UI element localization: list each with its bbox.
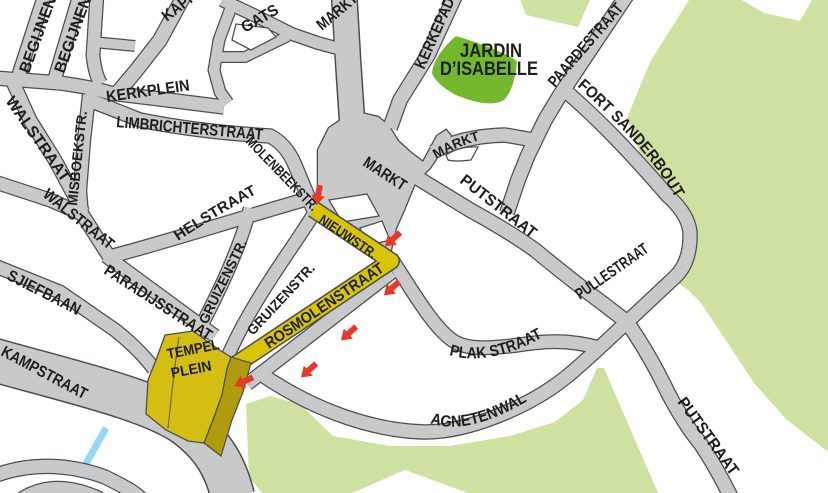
svg-text:D’ISABELLE: D’ISABELLE	[440, 59, 538, 80]
